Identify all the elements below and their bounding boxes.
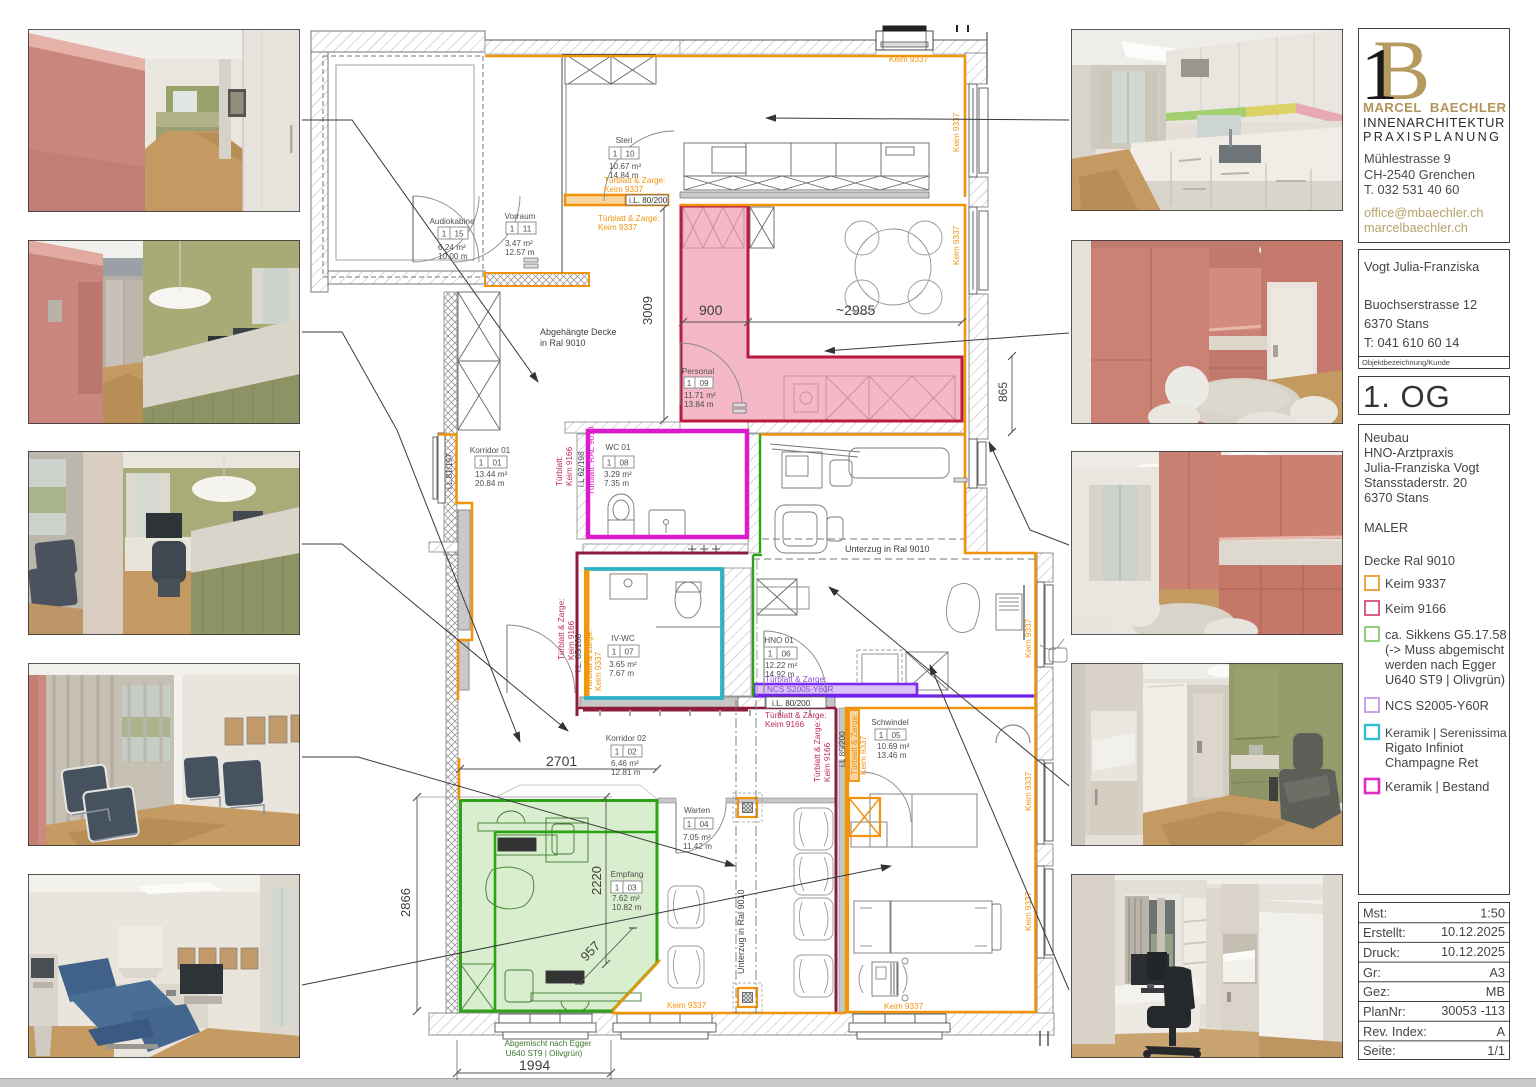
- svg-text:2701: 2701: [546, 753, 577, 769]
- svg-text:Steri: Steri: [616, 136, 633, 145]
- svg-text:12.81 m: 12.81 m: [611, 768, 641, 777]
- svg-text:Keim 9337: Keim 9337: [889, 55, 929, 64]
- svg-text:06: 06: [781, 650, 791, 659]
- svg-text:WC 01: WC 01: [605, 443, 630, 452]
- svg-text:03: 03: [627, 884, 637, 893]
- svg-text:3.47 m²: 3.47 m²: [505, 239, 533, 248]
- svg-text:i.L 62/198: i.L 62/198: [577, 451, 586, 487]
- svg-text:in Ral 9010: in Ral 9010: [540, 338, 586, 348]
- svg-text:Empfang: Empfang: [611, 870, 644, 879]
- svg-text:11.71 m²: 11.71 m²: [684, 391, 716, 400]
- svg-text:Korridor 02: Korridor 02: [606, 734, 647, 743]
- svg-text:Unterzug in Ral 9010: Unterzug in Ral 9010: [845, 544, 930, 554]
- svg-text:07: 07: [624, 648, 634, 657]
- svg-text:3.65 m²: 3.65 m²: [609, 660, 637, 669]
- svg-text:09: 09: [699, 379, 709, 388]
- svg-text:Keim 9166: Keim 9166: [823, 742, 832, 782]
- svg-text:2220: 2220: [589, 866, 604, 895]
- svg-text:U640 ST9 | Olivgrün): U640 ST9 | Olivgrün): [506, 1049, 583, 1058]
- svg-text:Türblatt & Zarge:: Türblatt & Zarge:: [813, 721, 822, 782]
- svg-text:HNO 01: HNO 01: [764, 636, 794, 645]
- svg-text:1: 1: [687, 820, 692, 829]
- svg-text:1: 1: [510, 225, 515, 234]
- svg-text:Keim 9337: Keim 9337: [667, 1001, 707, 1010]
- svg-text:Keim 9337: Keim 9337: [1024, 771, 1033, 811]
- svg-text:15: 15: [454, 230, 464, 239]
- svg-text:12.57 m: 12.57 m: [505, 248, 535, 257]
- svg-text:i.L. 85/200: i.L. 85/200: [574, 633, 583, 672]
- svg-text:Unterzug in Ral 9010: Unterzug in Ral 9010: [736, 889, 746, 974]
- svg-text:7.67 m: 7.67 m: [609, 669, 634, 678]
- svg-text:Türblatt & Zarge:: Türblatt & Zarge:: [765, 711, 826, 720]
- svg-text:Warten: Warten: [684, 806, 711, 815]
- svg-text:1994: 1994: [519, 1057, 550, 1073]
- svg-text:13.44 m²: 13.44 m²: [475, 470, 508, 479]
- svg-text:1: 1: [479, 459, 484, 468]
- svg-text:1: 1: [879, 731, 884, 740]
- svg-text:Schwindel: Schwindel: [871, 718, 909, 727]
- svg-text:Türblatt & Zarge:: Türblatt & Zarge:: [557, 599, 566, 660]
- svg-text:1: 1: [442, 230, 447, 239]
- svg-text:Keim 9166: Keim 9166: [765, 720, 805, 729]
- svg-text:i.L 81/197: i.L 81/197: [445, 453, 454, 489]
- svg-text:1: 1: [613, 150, 618, 159]
- svg-text:Türblatt: RAL 9010: Türblatt: RAL 9010: [587, 426, 596, 495]
- svg-text:02: 02: [627, 748, 637, 757]
- svg-text:1: 1: [607, 459, 612, 468]
- svg-text:08: 08: [619, 459, 629, 468]
- svg-text:05: 05: [891, 731, 901, 740]
- svg-text:7.62 m²: 7.62 m²: [612, 894, 640, 903]
- svg-text:11.42 m: 11.42 m: [683, 842, 712, 851]
- svg-text:Vorraum: Vorraum: [505, 212, 536, 221]
- svg-text:10.69 m²: 10.69 m²: [877, 742, 910, 751]
- svg-text:Türblatt:: Türblatt:: [555, 456, 564, 486]
- svg-text:IV-WC: IV-WC: [611, 634, 635, 643]
- svg-text:Keim 9337: Keim 9337: [604, 185, 644, 194]
- svg-text:1: 1: [768, 650, 773, 659]
- svg-text:Keim 9337: Keim 9337: [598, 223, 638, 232]
- svg-text:1: 1: [615, 884, 620, 893]
- svg-text:Türblatt & Zarge:: Türblatt & Zarge:: [598, 214, 659, 223]
- svg-text:13.46 m: 13.46 m: [877, 751, 907, 760]
- svg-text:7.05 m²: 7.05 m²: [683, 833, 711, 842]
- svg-text:10.67 m²: 10.67 m²: [609, 162, 642, 171]
- svg-text:11: 11: [523, 225, 532, 234]
- svg-text:13.84 m: 13.84 m: [684, 400, 714, 409]
- svg-text:i.L. 80/200: i.L. 80/200: [629, 196, 668, 205]
- svg-text:3.29 m²: 3.29 m²: [604, 470, 632, 479]
- svg-text:865: 865: [996, 382, 1010, 402]
- svg-text:Audiokabine: Audiokabine: [429, 217, 475, 226]
- svg-text:Keim 9337: Keim 9337: [952, 225, 961, 265]
- svg-text:Türblatt & Zarge:: Türblatt & Zarge:: [850, 714, 859, 775]
- svg-text:10: 10: [625, 150, 635, 159]
- svg-text:Keim 9166: Keim 9166: [565, 446, 574, 486]
- svg-text:Keim 9337: Keim 9337: [859, 735, 868, 775]
- svg-text:1: 1: [687, 379, 692, 388]
- svg-text:Türblatt & Zarge:: Türblatt & Zarge:: [585, 630, 594, 691]
- svg-text:12.22 m²: 12.22 m²: [765, 661, 798, 670]
- svg-text:i.L. 80/200: i.L. 80/200: [772, 699, 811, 708]
- svg-text:Personal: Personal: [682, 367, 714, 376]
- svg-text:1: 1: [612, 648, 617, 657]
- svg-text:10.00 m: 10.00 m: [438, 252, 468, 261]
- svg-text:Keim 9337: Keim 9337: [1024, 891, 1033, 931]
- svg-text:1: 1: [615, 748, 620, 757]
- svg-text:Keim 9337: Keim 9337: [952, 112, 961, 152]
- svg-text:Türblatt & Zarge:: Türblatt & Zarge:: [765, 675, 826, 684]
- svg-text:6.46 m²: 6.46 m²: [611, 759, 639, 768]
- svg-text:Keim 9337: Keim 9337: [594, 651, 603, 691]
- svg-text:Türblatt & Zarge:: Türblatt & Zarge:: [604, 176, 665, 185]
- svg-text:7.35 m: 7.35 m: [604, 479, 629, 488]
- svg-text:04: 04: [699, 820, 709, 829]
- svg-text:20.84 m: 20.84 m: [475, 479, 505, 488]
- svg-text:i.L 85/200: i.L 85/200: [838, 731, 847, 767]
- svg-text:Korridor 01: Korridor 01: [470, 446, 511, 455]
- svg-text:Abgemischt nach Egger: Abgemischt nach Egger: [505, 1039, 592, 1048]
- svg-text:01: 01: [492, 459, 502, 468]
- svg-text:3009: 3009: [640, 296, 655, 325]
- svg-text:Keim 9337: Keim 9337: [884, 1002, 924, 1011]
- svg-text:~2985: ~2985: [836, 302, 876, 318]
- svg-text:Abgehängte Decke: Abgehängte Decke: [540, 327, 617, 337]
- svg-text:2866: 2866: [398, 888, 413, 917]
- svg-text:Keim 9337: Keim 9337: [1024, 618, 1033, 658]
- svg-text:900: 900: [699, 302, 723, 318]
- svg-text:10.82 m: 10.82 m: [612, 903, 642, 912]
- svg-text:NCS S2005-Y60R: NCS S2005-Y60R: [767, 685, 834, 694]
